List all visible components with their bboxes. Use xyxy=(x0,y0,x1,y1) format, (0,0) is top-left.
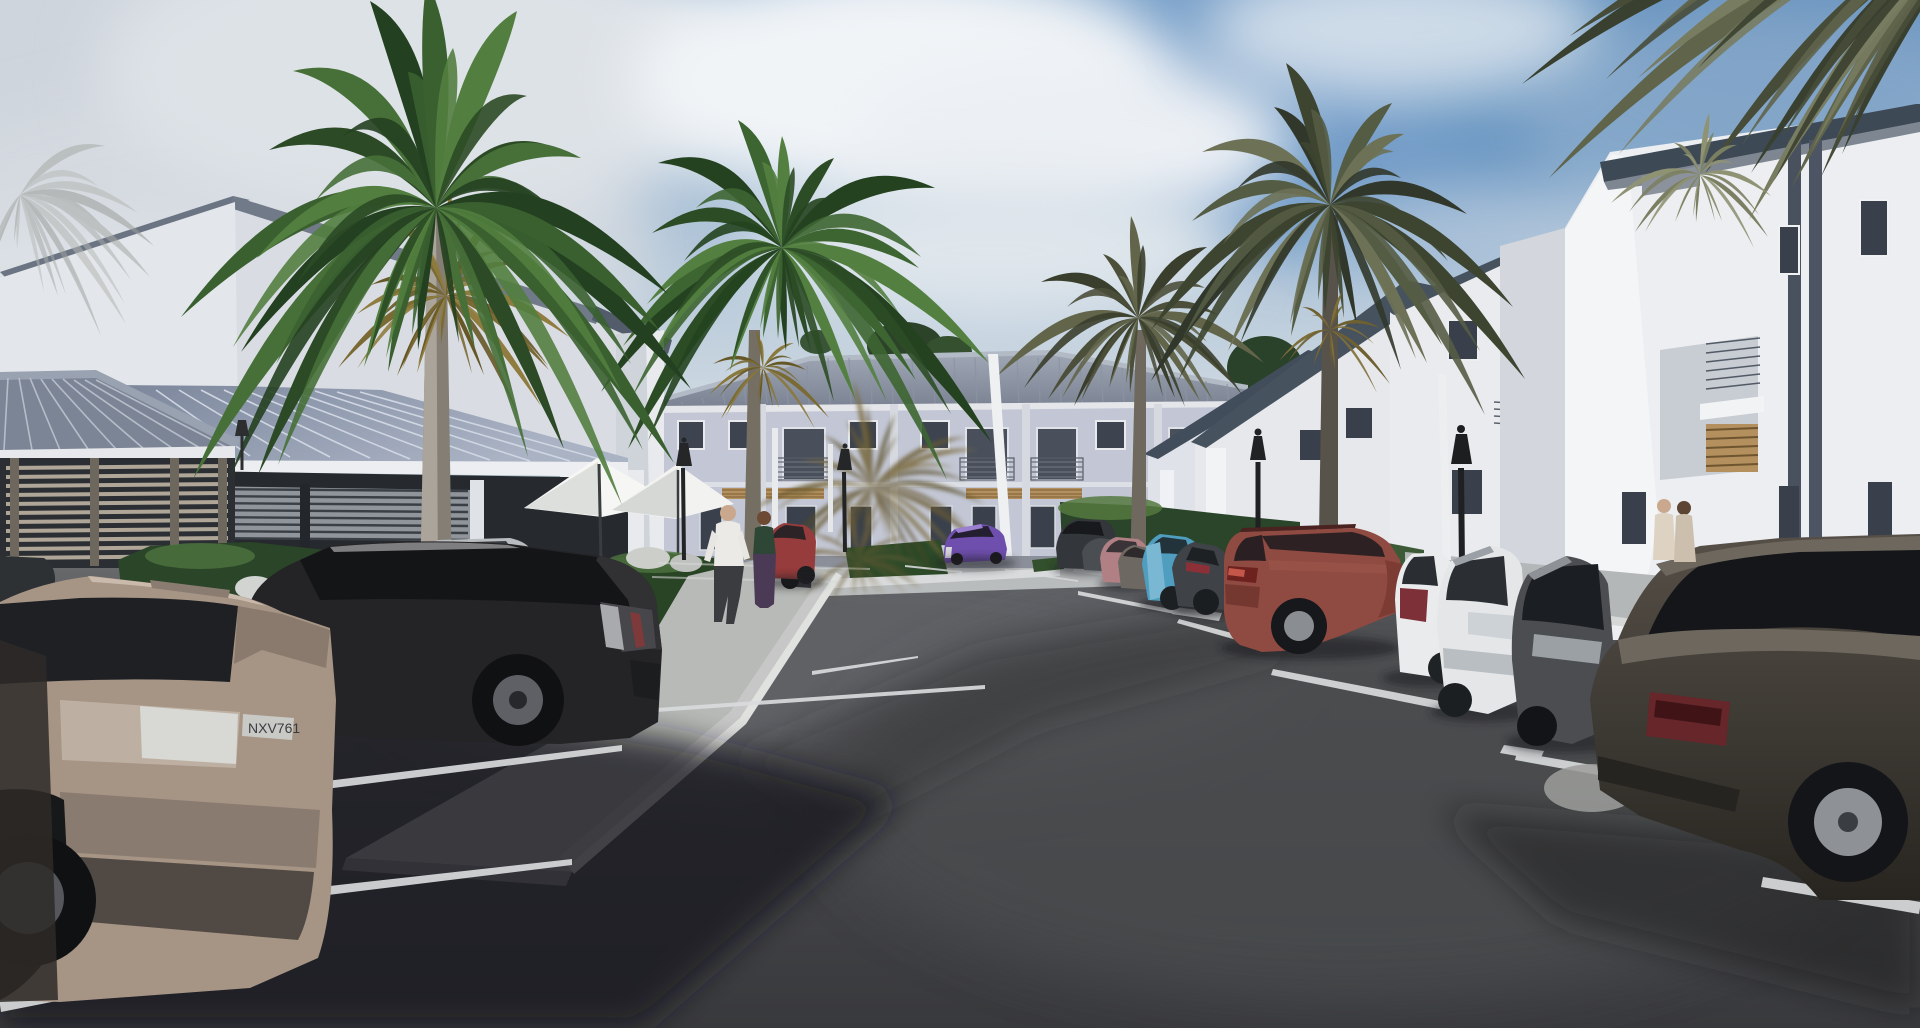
svg-text:NXV761: NXV761 xyxy=(248,720,300,736)
